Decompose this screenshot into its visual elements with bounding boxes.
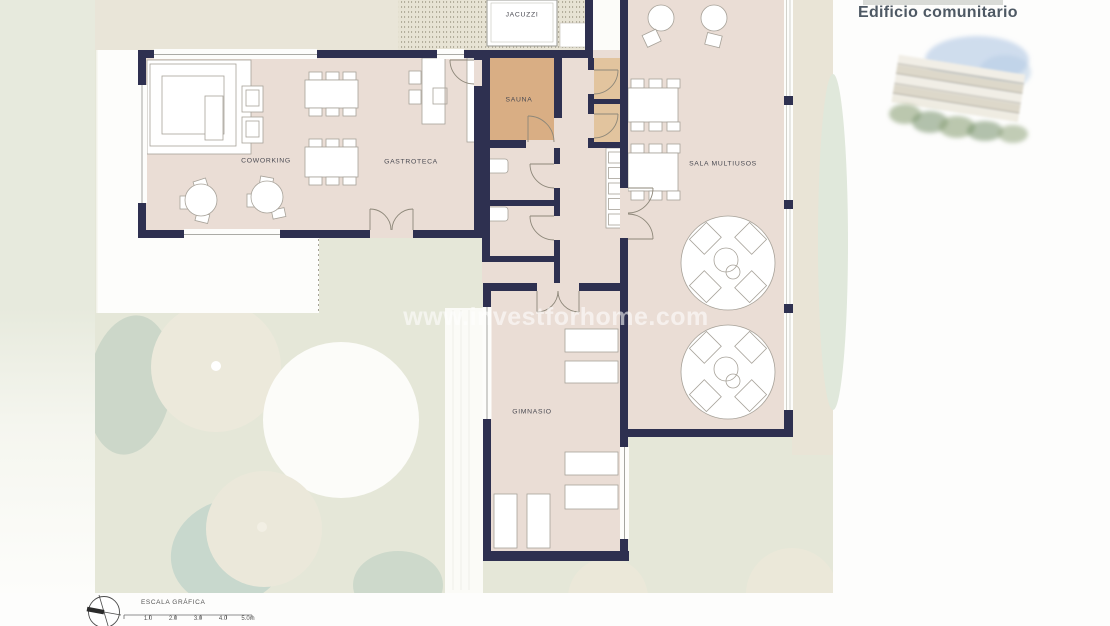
watermark: www.investforhome.com <box>396 303 716 332</box>
scale-tick: 3.0 <box>187 616 209 622</box>
scale-tick: 1.0 <box>137 616 159 622</box>
room-label-sala-multiusos: SALA MULTIUSOS <box>689 161 757 168</box>
floor-plan-page: JACUZZI SAUNA COWORKING GASTROTECA SALA … <box>0 0 1110 626</box>
room-label-gimnasio: GIMNASIO <box>512 409 552 416</box>
north-compass-icon <box>87 595 121 626</box>
scale-bar-label: ESCALA GRÁFICA <box>141 599 205 606</box>
building-illustration <box>885 32 1035 150</box>
scale-tick: 2.0 <box>162 616 184 622</box>
scale-tick: 5.0m <box>237 616 259 622</box>
page-title: Edificio comunitario <box>858 4 1018 22</box>
room-label-sauna: SAUNA <box>506 97 533 104</box>
room-label-jacuzzi: JACUZZI <box>506 12 539 19</box>
room-label-coworking: COWORKING <box>241 158 291 165</box>
side-path <box>445 308 483 593</box>
room-label-gastroteca: GASTROTECA <box>384 159 438 166</box>
scale-tick: 4.0 <box>212 616 234 622</box>
jacuzzi-tub <box>487 0 557 46</box>
